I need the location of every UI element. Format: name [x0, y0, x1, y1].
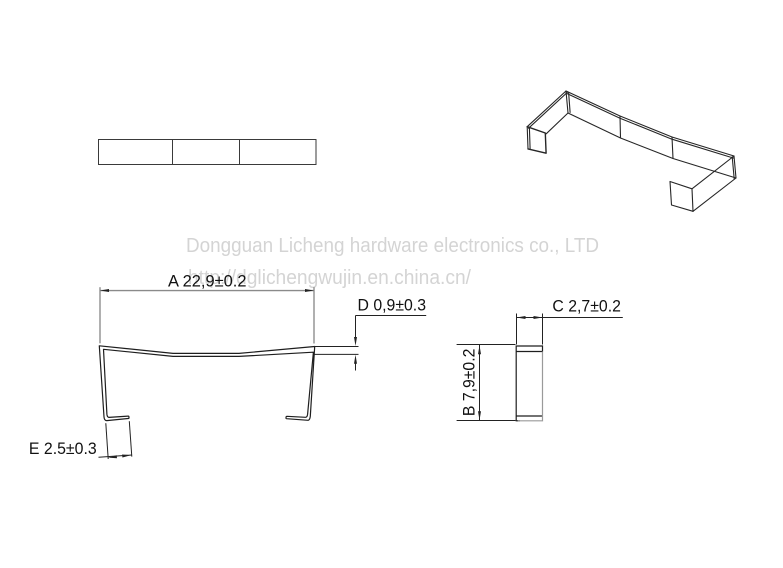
svg-text:Dongguan Licheng hardware elec: Dongguan Licheng hardware electronics co…	[186, 235, 599, 257]
svg-text:B 7,9±0.2: B 7,9±0.2	[460, 349, 478, 417]
svg-text:C 2,7±0.2: C 2,7±0.2	[552, 298, 621, 316]
svg-text:D 0,9±0.3: D 0,9±0.3	[358, 297, 427, 315]
svg-text:A 22,9±0.2: A 22,9±0.2	[168, 273, 247, 291]
svg-text:E 2.5±0.3: E 2.5±0.3	[29, 440, 97, 458]
